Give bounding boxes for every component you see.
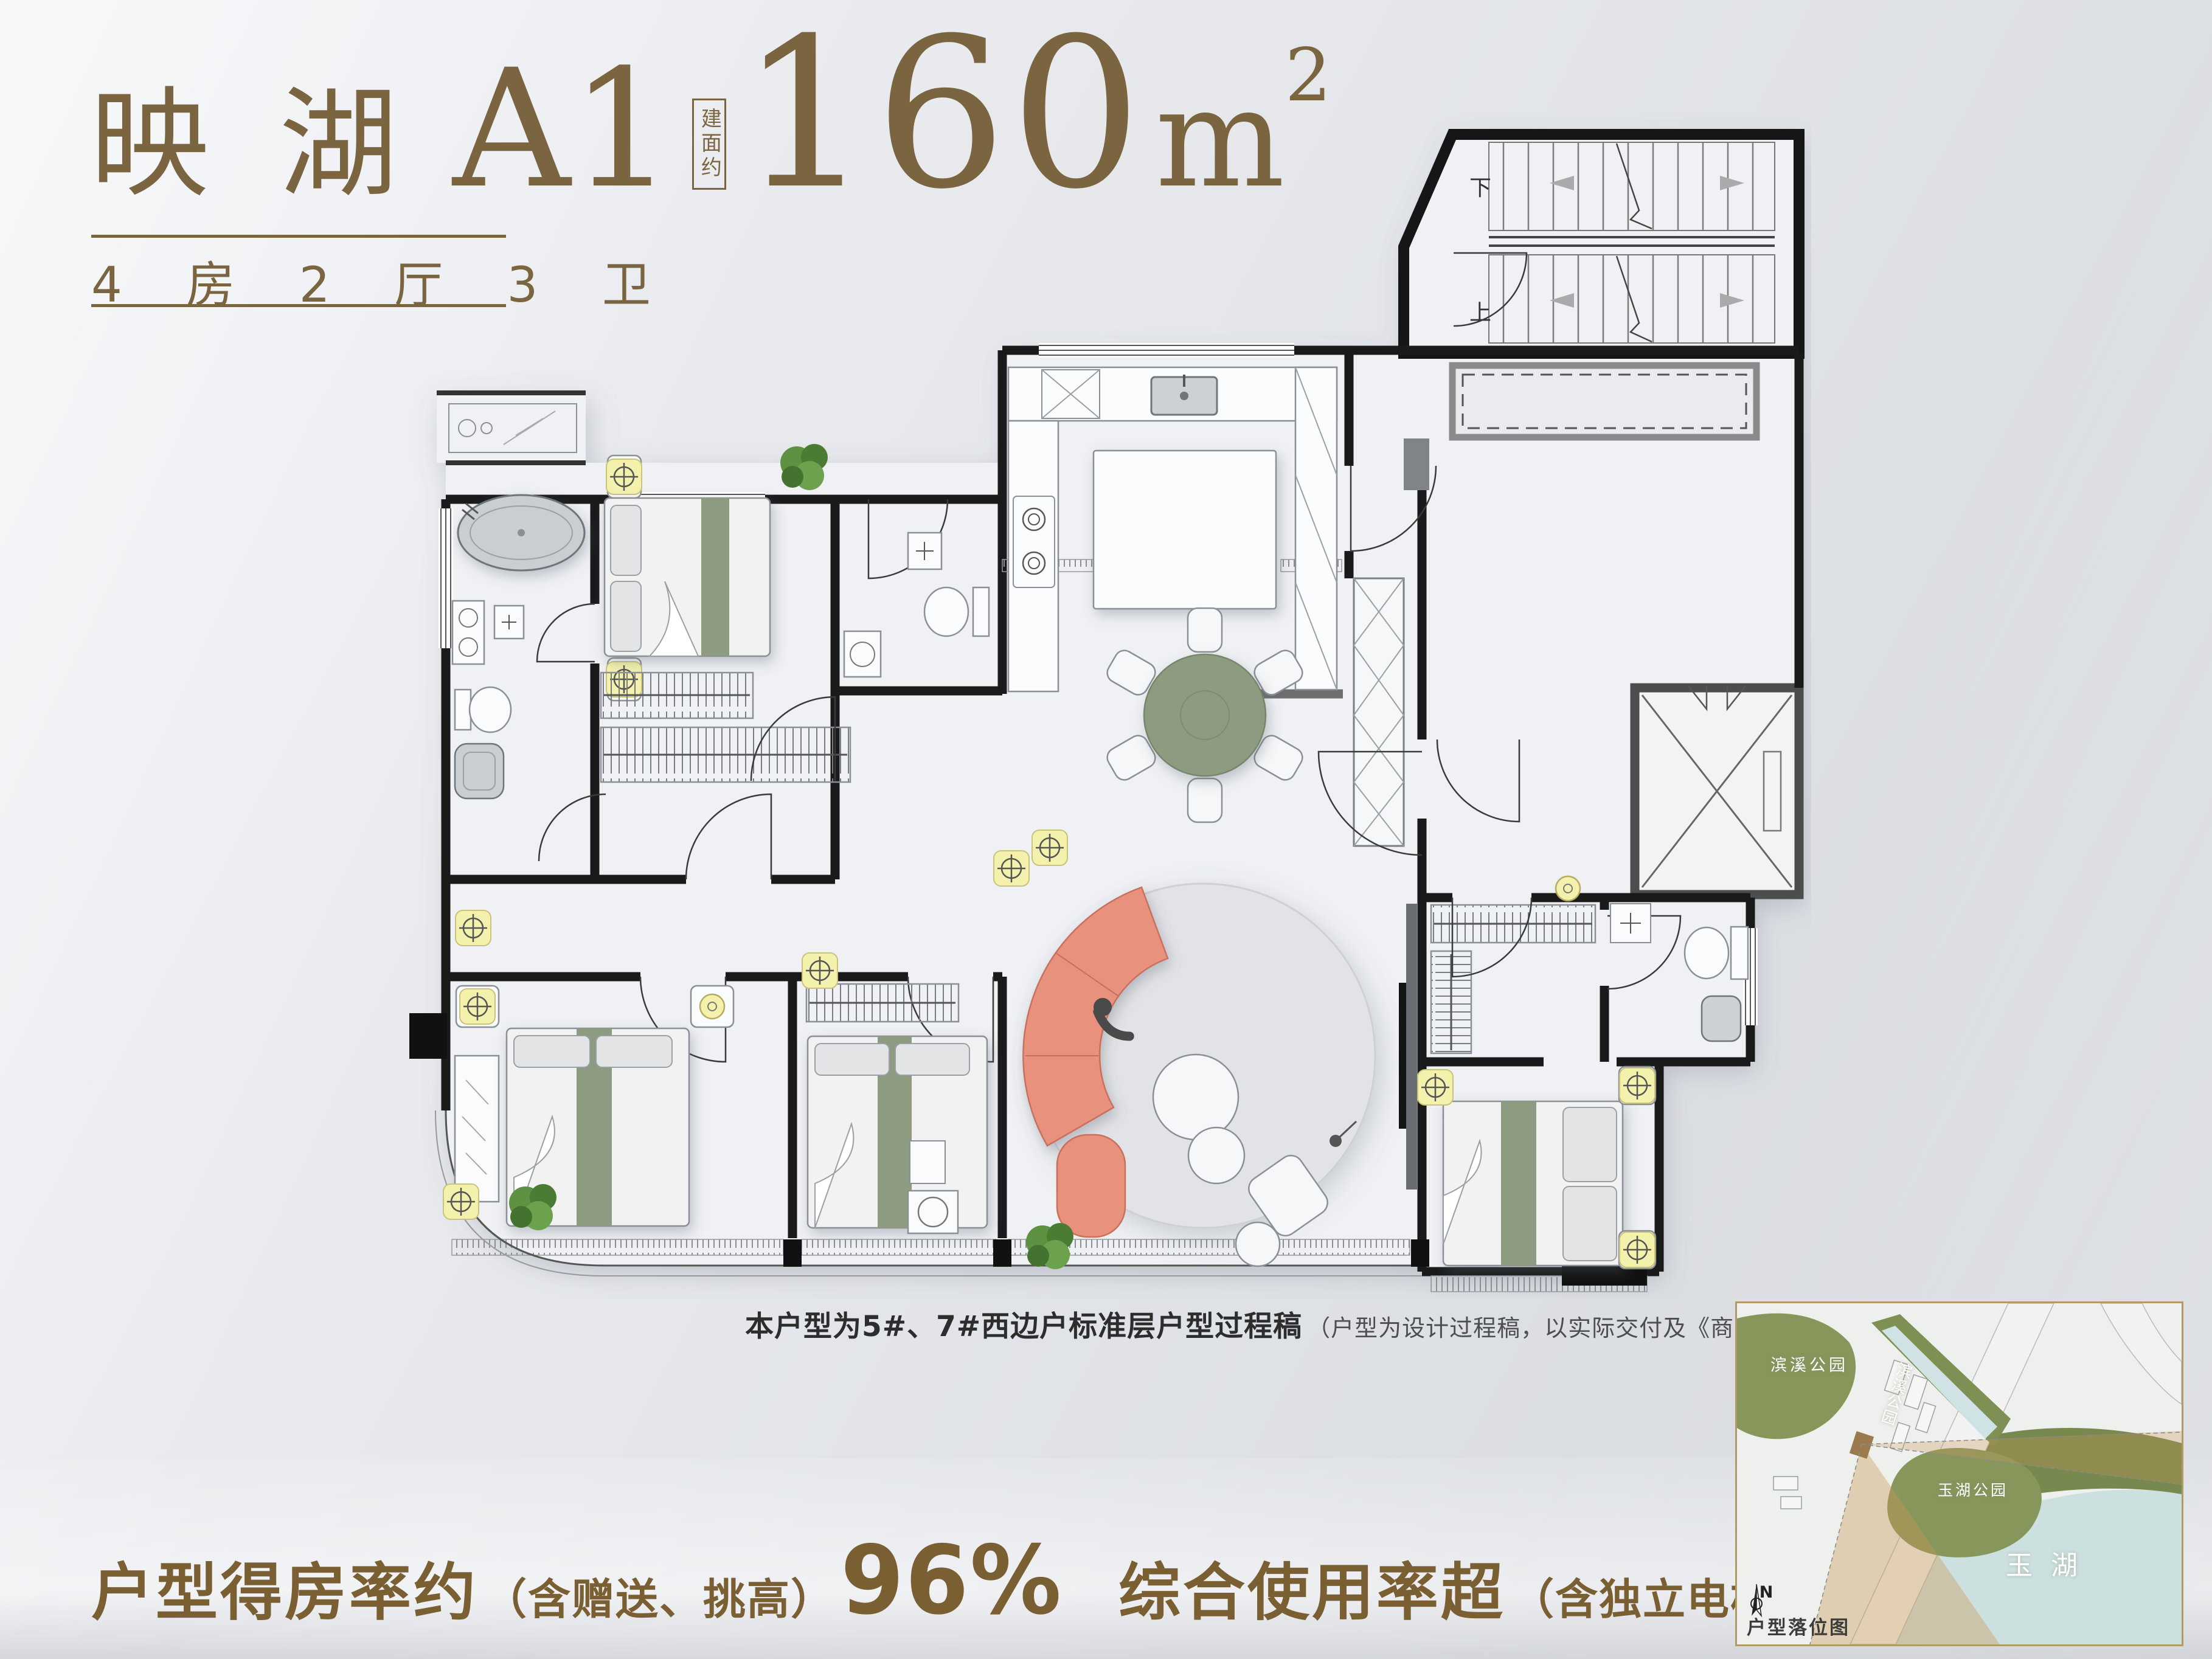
plant-icon — [509, 1184, 556, 1230]
spotlight-icon — [994, 851, 1029, 886]
flyer-page: 映 湖 A1 建面约 160 m2 4 房 2 厅 3 卫 — [0, 0, 2212, 1659]
tv-wall — [1406, 904, 1417, 1190]
compass: N — [1748, 1583, 1784, 1603]
spotlight-icon — [1032, 830, 1067, 865]
tv — [1399, 983, 1406, 1129]
map-lake-label: 玉湖 — [2006, 1543, 2096, 1582]
spotlight-icon — [1620, 1232, 1655, 1267]
spotlight-icon — [1620, 1068, 1655, 1103]
void-opening — [1452, 365, 1756, 437]
usage-label: 综合使用率超 — [1118, 1543, 1505, 1632]
floor-plan: 下 上 — [394, 107, 1811, 1299]
stair-down-label: 下 — [1469, 176, 1491, 201]
map-park-left-label: 滨溪公园 — [1770, 1352, 1848, 1376]
spotlight-icon — [1418, 1070, 1453, 1105]
spotlight-icon — [443, 1184, 479, 1219]
plant-icon — [780, 444, 828, 490]
spotlight-icon — [802, 953, 837, 988]
coffee-table — [1153, 1055, 1238, 1140]
lamp-icon — [700, 994, 724, 1019]
map-title: 户型落位图 — [1747, 1612, 1850, 1640]
chaise — [1057, 1135, 1125, 1237]
side-table — [1188, 1127, 1244, 1183]
caption-main: 本户型为5#、7#西边户标准层户型过程稿 — [745, 1303, 1302, 1345]
ratio-value: 96% — [841, 1526, 1063, 1636]
project-name: 映 湖 — [90, 85, 414, 204]
lamp-icon — [1556, 876, 1580, 901]
plant-icon — [1026, 1223, 1073, 1269]
location-map: 滨溪公园 滨溪公园 玉湖公园 玉湖 N 户型落位图 — [1735, 1301, 2183, 1646]
spotlight-icon — [606, 459, 642, 494]
ratio-note: （含赠送、挑高） — [484, 1565, 834, 1627]
spotlight-icon — [456, 910, 491, 946]
spotlight-icon — [460, 989, 495, 1024]
map-park-center-label: 玉湖公园 — [1938, 1478, 2008, 1500]
elevator — [1635, 686, 1799, 895]
area-unit-sup: 2 — [1285, 33, 1331, 118]
ratio-label: 户型得房率约 — [91, 1543, 478, 1632]
floor-plan-svg: 下 上 — [394, 107, 1811, 1299]
